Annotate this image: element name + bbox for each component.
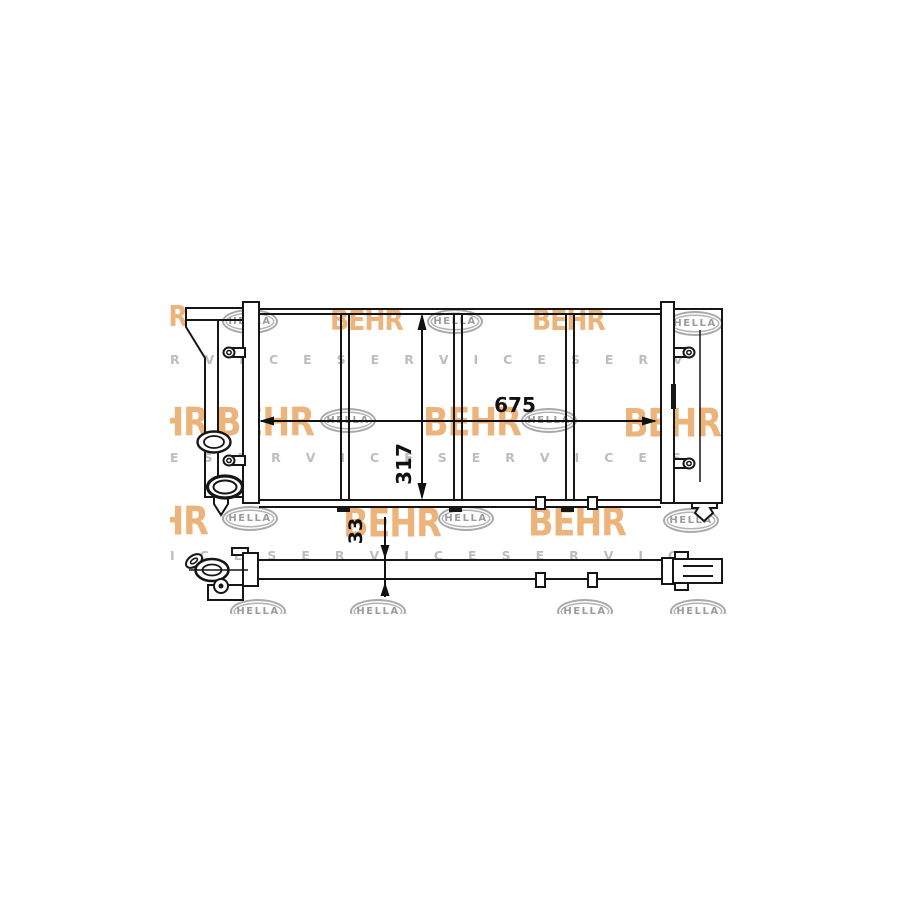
left-upper-clip-ring — [224, 348, 235, 358]
side-right-body — [673, 559, 722, 583]
side-clip — [536, 573, 545, 587]
front-view — [186, 302, 722, 521]
bottom-clip — [536, 497, 545, 509]
bottom-tab — [561, 507, 574, 512]
left-tank-outline — [186, 308, 244, 497]
depth-arrowhead-down — [381, 545, 390, 559]
right-upper-clip-ring — [684, 348, 695, 358]
side-view — [183, 548, 722, 600]
height-arrowhead-top — [418, 313, 427, 330]
left-drain-tab — [214, 497, 228, 515]
bottom-tab — [449, 507, 462, 512]
width-dimension-label: 675 — [494, 393, 536, 417]
bottom-clip — [588, 497, 597, 509]
depth-dimension-label: 33 — [345, 518, 367, 544]
core-bottom-edge — [259, 500, 661, 507]
right-tank-outline — [674, 309, 722, 503]
radiator-technical-drawing: 675 317 33 — [0, 0, 900, 900]
width-arrowhead-right — [642, 417, 657, 426]
side-right-tab-bottom — [675, 583, 688, 590]
height-arrowhead-bottom — [418, 483, 427, 500]
left-side-plate — [243, 302, 259, 503]
dimensions — [259, 313, 657, 597]
side-clip — [588, 573, 597, 587]
core-top-edge — [259, 309, 661, 314]
side-bar — [258, 560, 662, 579]
side-right-tab-top — [675, 552, 688, 559]
right-tank-black-bracket — [671, 384, 676, 409]
depth-arrowhead-up — [381, 582, 390, 596]
filler-neck-oval — [198, 432, 231, 453]
core-dividers — [341, 314, 574, 500]
side-right-plate — [662, 558, 673, 584]
height-dimension-label: 317 — [392, 443, 416, 485]
width-arrowhead-left — [259, 417, 274, 426]
right-mount-bracket — [692, 503, 717, 521]
left-lower-clip-ring — [224, 456, 235, 466]
bottom-tab — [337, 507, 350, 512]
radiator-product-image: HELLABEHRHELLABEHRHELLABEHRRVICESERVICES… — [0, 0, 900, 900]
right-lower-clip-ring — [684, 459, 695, 469]
